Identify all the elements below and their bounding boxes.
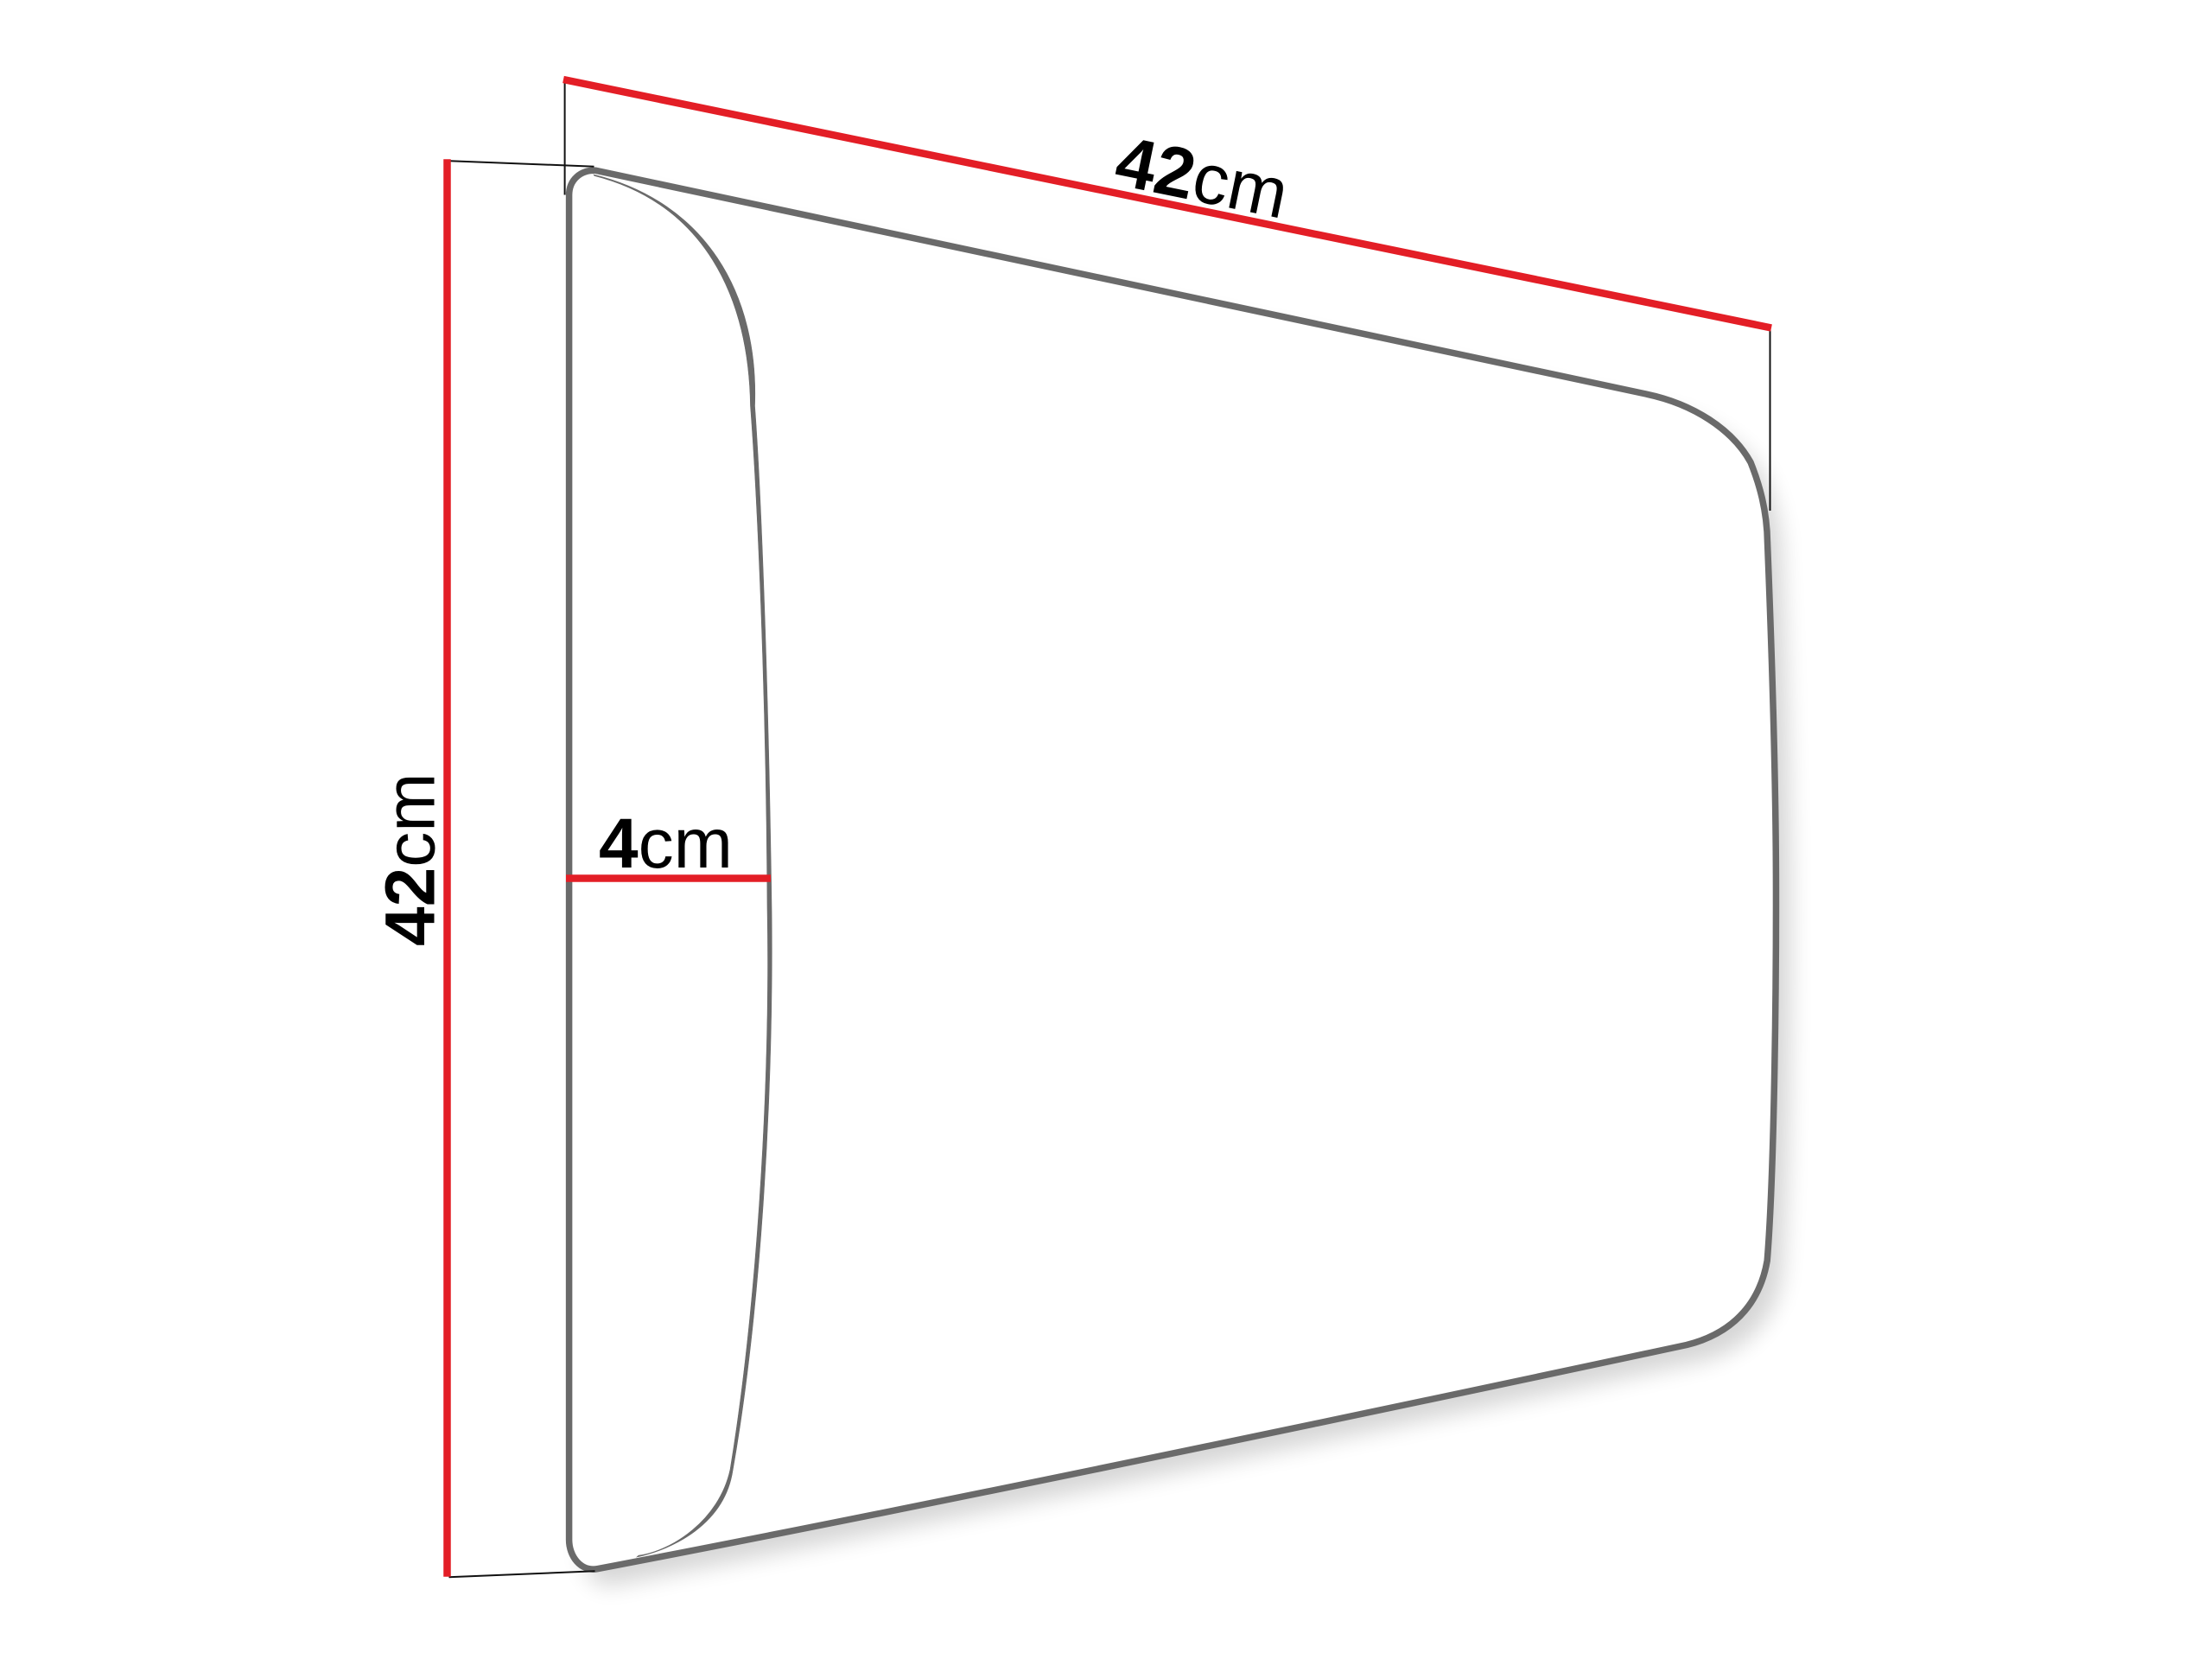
svg-text:42cm: 42cm bbox=[1109, 122, 1295, 234]
svg-text:42cm: 42cm bbox=[372, 772, 450, 946]
svg-text:4cm: 4cm bbox=[599, 804, 733, 883]
